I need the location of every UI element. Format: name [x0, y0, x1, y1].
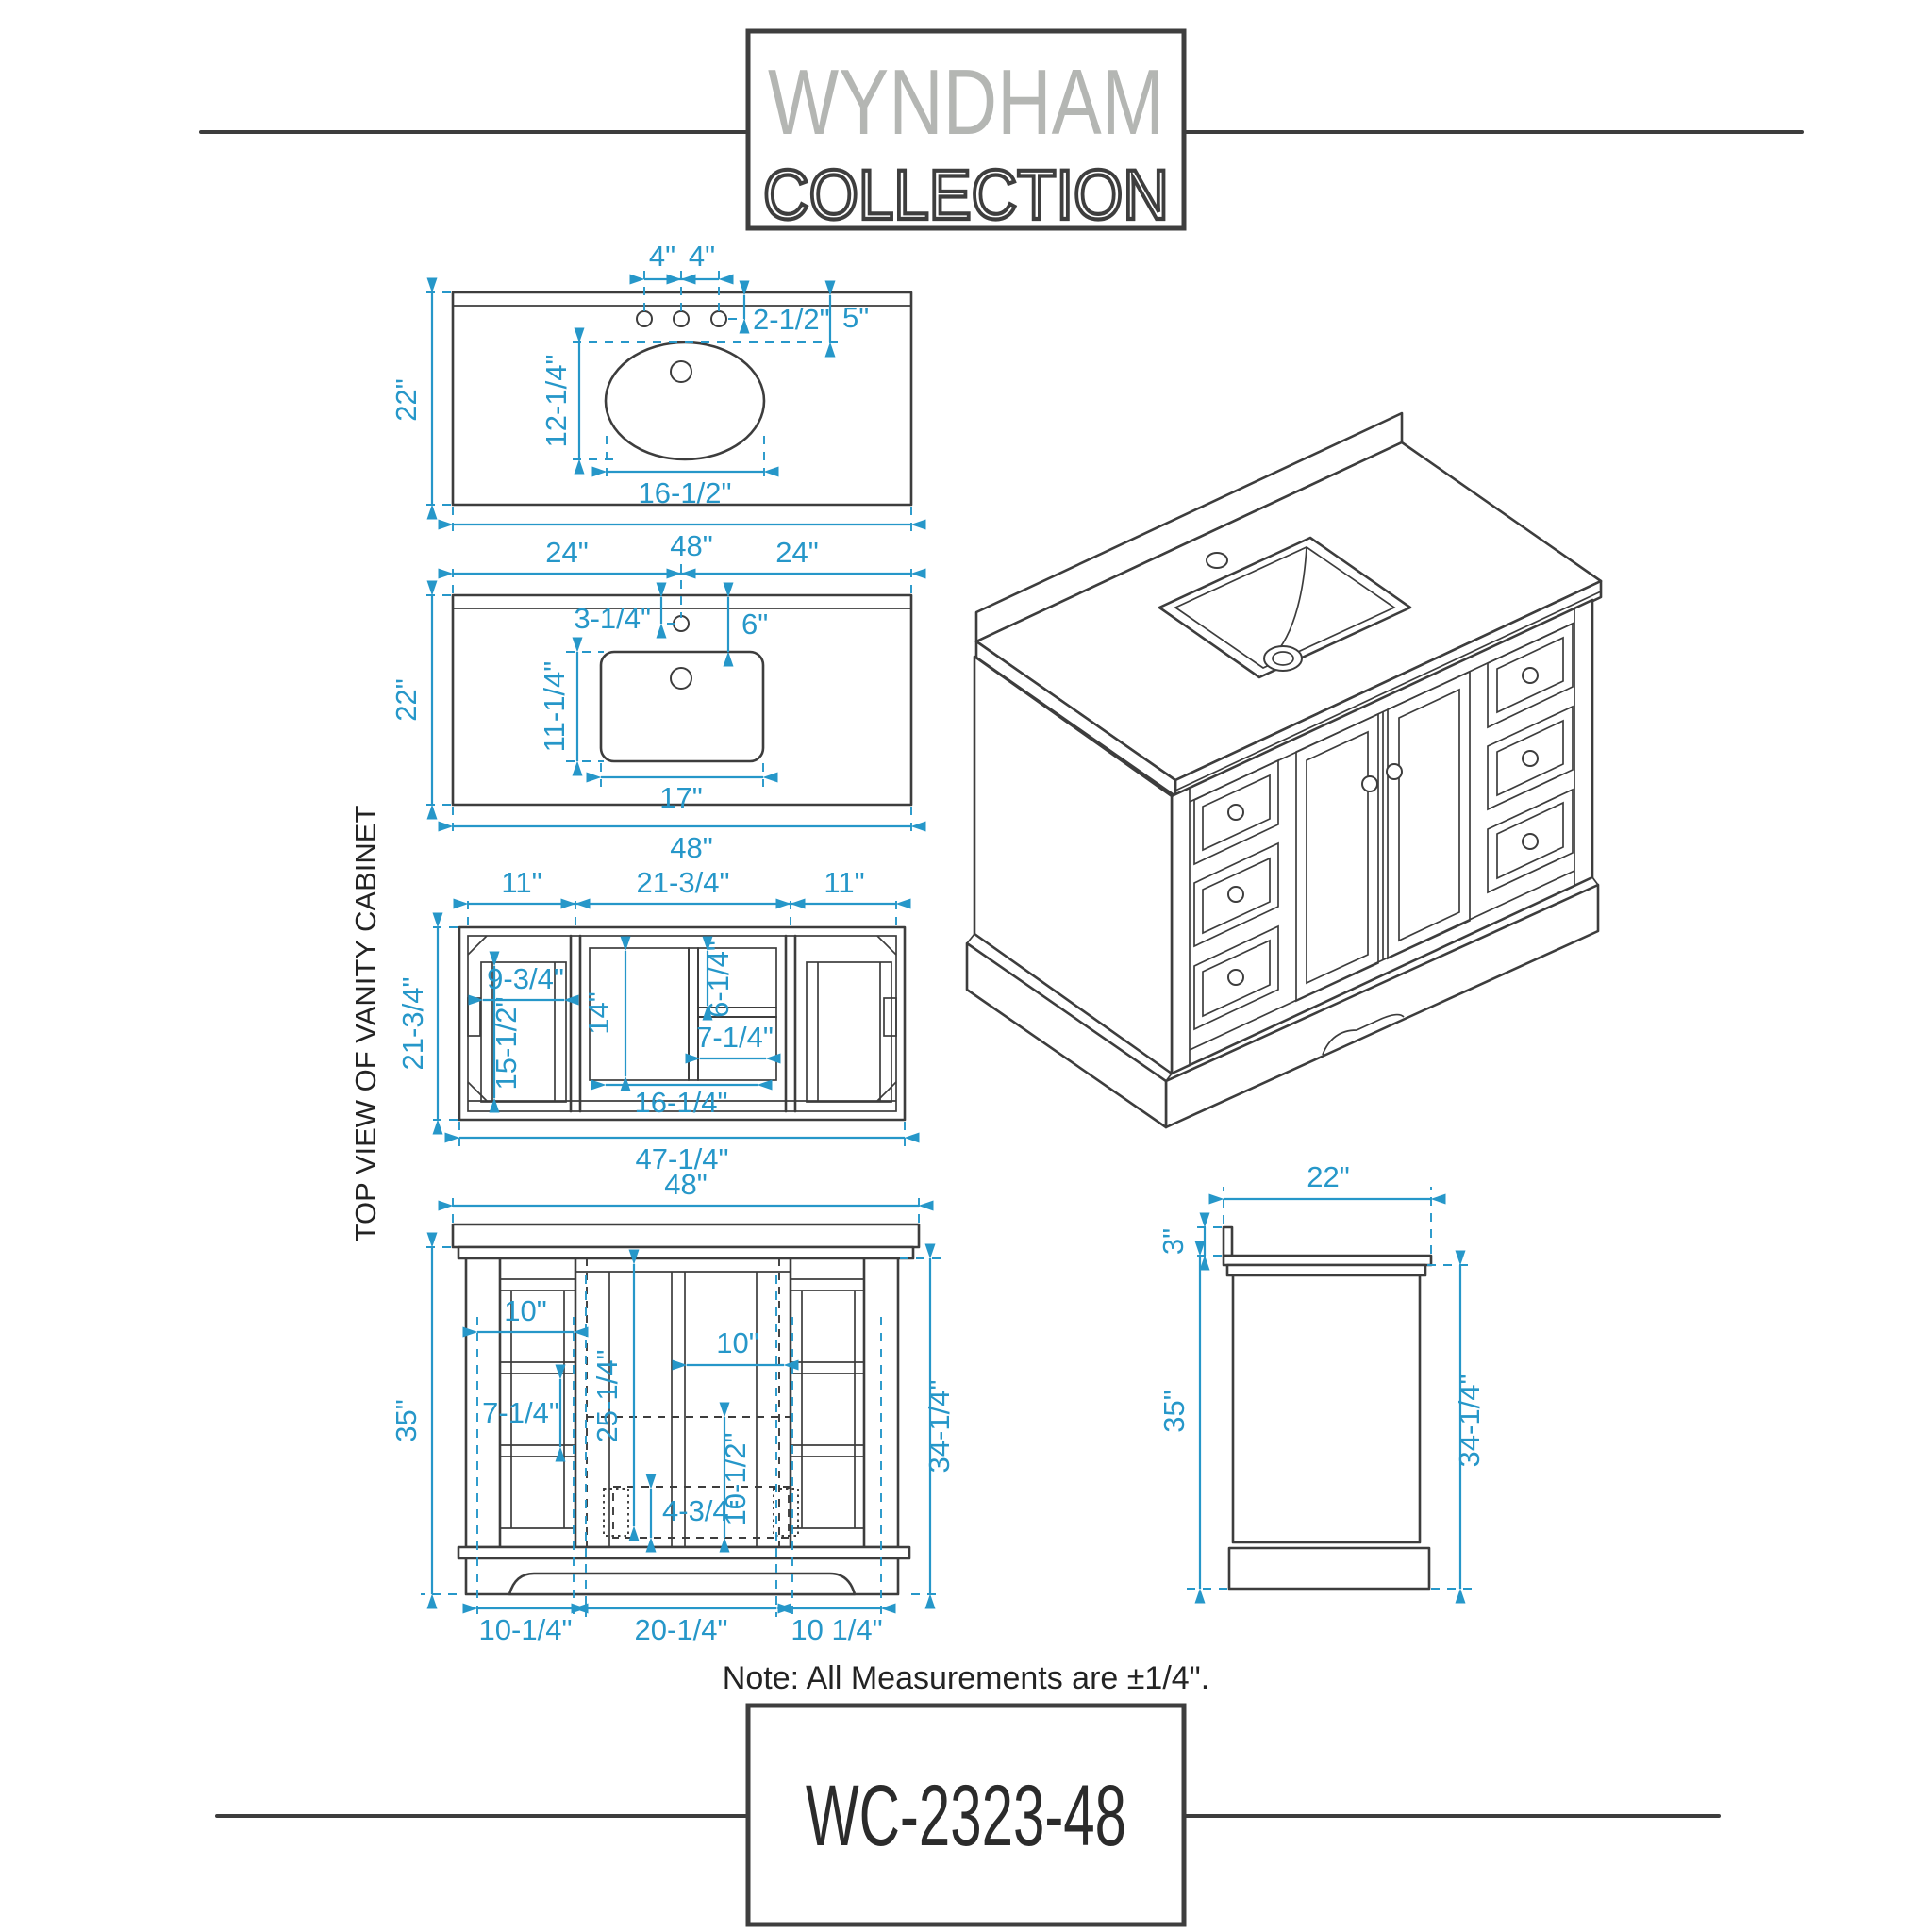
view-isometric — [967, 413, 1601, 1127]
dim-front-bottom-left: 10-1/4" — [479, 1613, 573, 1646]
dim-rect-sink-width: 17" — [659, 781, 703, 814]
dim-oval-spacing-right: 4" — [689, 240, 715, 273]
measurement-note: Note: All Measurements are ±1/4". — [723, 1660, 1209, 1696]
dim-top-center-depth: 14" — [582, 991, 615, 1035]
dim-oval-depth: 22" — [390, 378, 423, 422]
view-caption-top-view: TOP VIEW OF VANITY CABINET — [349, 806, 382, 1242]
spec-sheet-page: WYNDHAM COLLECTION 4" 4" 2-1/2" 5" 12-1/… — [0, 0, 1932, 1932]
view-cabinet-top: 11" 21-3/4" 11" 21-3/4" 9-3/4" 15-1/2" 1… — [349, 806, 905, 1242]
header-logo: WYNDHAM COLLECTION — [201, 31, 1802, 234]
dim-top-drawer-depth: 15-1/2" — [490, 997, 523, 1091]
dim-front-height: 35" — [390, 1399, 423, 1442]
dim-oval-width: 48" — [670, 529, 713, 562]
dim-top-shelf-height: 6-1/4" — [702, 941, 735, 1018]
dim-rect-sink-depth: 11-1/4" — [538, 661, 571, 753]
dim-front-bottom-center: 20-1/4" — [635, 1613, 728, 1646]
dim-front-base-height: 4-3/4" — [662, 1494, 740, 1527]
dim-top-section-right: 11" — [824, 866, 864, 899]
dim-oval-hole-offset: 2-1/2" — [753, 303, 830, 336]
model-number: WC-2323-48 — [806, 1768, 1126, 1864]
dim-front-drawer-right: 10" — [716, 1326, 759, 1359]
dim-top-section-center: 21-3/4" — [637, 866, 730, 899]
dim-top-section-left: 11" — [501, 866, 541, 899]
brand-name: WYNDHAM — [768, 50, 1164, 154]
view-front: 48" 10" 7-1/4" 25-1/4" 10" 10-1/2" 4-3/4… — [390, 1168, 956, 1646]
dim-top-center-width: 16-1/4" — [635, 1086, 728, 1119]
dim-top-shelf-width: 7-1/4" — [696, 1021, 774, 1054]
dim-oval-spacing-left: 4" — [649, 240, 675, 273]
dim-front-width: 48" — [664, 1168, 708, 1201]
dim-front-drawer-height: 7-1/4" — [482, 1396, 559, 1429]
footer: Note: All Measurements are ±1/4". WC-232… — [217, 1660, 1719, 1924]
view-countertop-rect: 24" 24" 3-1/4" 6" 11-1/4" 17" 22" 48" — [390, 536, 911, 864]
dim-rect-half-left: 24" — [545, 536, 589, 569]
dim-top-depth: 21-3/4" — [396, 977, 429, 1071]
dim-front-drawer-left: 10" — [504, 1294, 547, 1327]
dim-front-door-height: 25-1/4" — [591, 1350, 624, 1443]
dim-side-splash: 3" — [1157, 1228, 1190, 1255]
dim-rect-width: 48" — [670, 831, 713, 864]
brand-sub: COLLECTION — [763, 156, 1169, 234]
dim-front-cab-height: 34-1/4" — [923, 1380, 956, 1474]
dim-rect-depth: 22" — [390, 678, 423, 722]
dim-oval-sink-depth: 12-1/4" — [540, 355, 573, 448]
dim-side-depth: 22" — [1307, 1160, 1350, 1193]
dim-oval-sink-width: 16-1/2" — [639, 476, 732, 509]
dim-front-bottom-right: 10 1/4" — [791, 1613, 882, 1646]
dim-rect-half-right: 24" — [775, 536, 819, 569]
dim-top-drawer-width: 9-3/4" — [487, 962, 564, 995]
view-countertop-oval: 4" 4" 2-1/2" 5" 12-1/4" 16-1/2" 22" 48" — [390, 240, 911, 562]
dim-side-cab-height: 34-1/4" — [1453, 1374, 1486, 1468]
view-side: 22" 3" 35" 34-1/4" — [1157, 1160, 1486, 1589]
dim-rect-sink-offset: 6" — [741, 608, 768, 641]
drawing-canvas: WYNDHAM COLLECTION 4" 4" 2-1/2" 5" 12-1/… — [0, 0, 1932, 1932]
dim-rect-hole-offset: 3-1/4" — [574, 602, 651, 635]
dim-oval-sink-offset: 5" — [842, 301, 869, 334]
dim-side-height: 35" — [1158, 1390, 1191, 1433]
